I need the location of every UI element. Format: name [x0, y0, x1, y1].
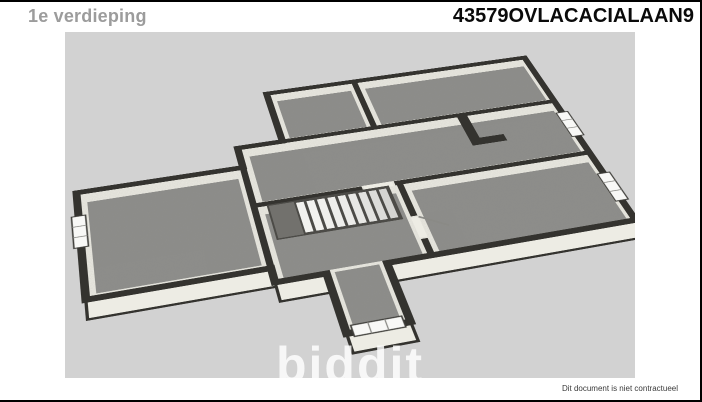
page-title: 43579OVLACACIALAAN9	[453, 5, 694, 28]
document-footer: Dit document is niet contractueel	[0, 380, 702, 400]
document-header: 1e verdieping 43579OVLACACIALAAN9	[0, 2, 700, 32]
window-icon-left-room	[71, 215, 88, 248]
floor-label: 1e verdieping	[28, 6, 147, 27]
floorplan-canvas: biddit	[65, 32, 635, 378]
floorplan-document-page: 1e verdieping 43579OVLACACIALAAN9	[0, 0, 702, 402]
floor-plan-svg	[65, 54, 635, 378]
disclaimer-text: Dit document is niet contractueel	[562, 384, 678, 393]
floorplan-3d-view	[65, 54, 635, 378]
biddit-watermark: biddit	[276, 340, 424, 378]
